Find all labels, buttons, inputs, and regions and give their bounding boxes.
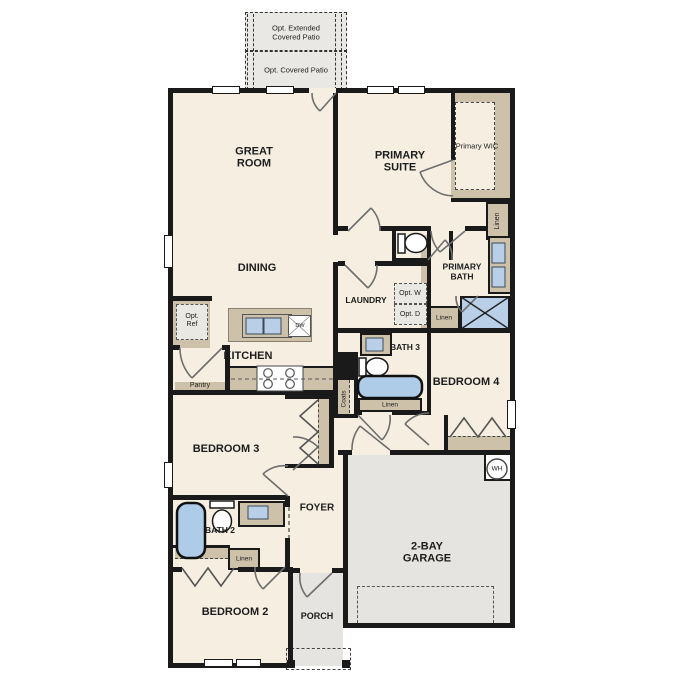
coats-label: Coats bbox=[340, 391, 347, 408]
hall-linen-label: Linen bbox=[494, 212, 502, 229]
dining-label: DINING bbox=[207, 262, 307, 274]
bath2-label: BATH 2 bbox=[190, 526, 250, 536]
primary-bath-linen-label: Linen bbox=[424, 314, 464, 321]
garage-label: 2-BAY GARAGE bbox=[391, 541, 463, 566]
primary-suite-label: PRIMARY SUITE bbox=[365, 150, 435, 175]
foyer-label: FOYER bbox=[287, 502, 347, 513]
patio-covered-label: Opt. Covered Patio bbox=[250, 67, 342, 76]
primary-wic-label: Primary WIC bbox=[455, 143, 499, 152]
bedroom4-label: BEDROOM 4 bbox=[421, 376, 511, 388]
opt-washer-label: Opt. W bbox=[398, 290, 422, 298]
opt-dryer-label: Opt. D bbox=[398, 311, 422, 319]
dishwasher-label: DW bbox=[290, 323, 310, 329]
opt-ref-label: Opt. Ref bbox=[179, 313, 205, 329]
water-heater-label: WH bbox=[485, 465, 509, 472]
bath3-label: BATH 3 bbox=[389, 343, 421, 353]
bedroom3-label: BEDROOM 3 bbox=[176, 443, 276, 455]
laundry-label: LAUNDRY bbox=[331, 296, 401, 306]
bath3-linen-label: Linen bbox=[370, 401, 410, 408]
fixtures-layer bbox=[0, 0, 687, 687]
bedroom2-linen-label: Linen bbox=[224, 555, 264, 562]
kitchen-label: KITCHEN bbox=[208, 350, 288, 362]
patio-extended-label: Opt. Extended Covered Patio bbox=[260, 24, 332, 41]
shower-glass-marks bbox=[461, 297, 509, 329]
floor-plan-canvas: Opt. Extended Covered Patio Opt. Covered… bbox=[0, 0, 687, 687]
great-room-label: GREAT ROOM bbox=[223, 146, 285, 171]
pantry-label: Pantry bbox=[180, 382, 220, 390]
bedroom2-label: BEDROOM 2 bbox=[185, 606, 285, 618]
primary-bath-label: PRIMARY BATH bbox=[433, 262, 491, 281]
porch-label: PORCH bbox=[292, 611, 342, 621]
